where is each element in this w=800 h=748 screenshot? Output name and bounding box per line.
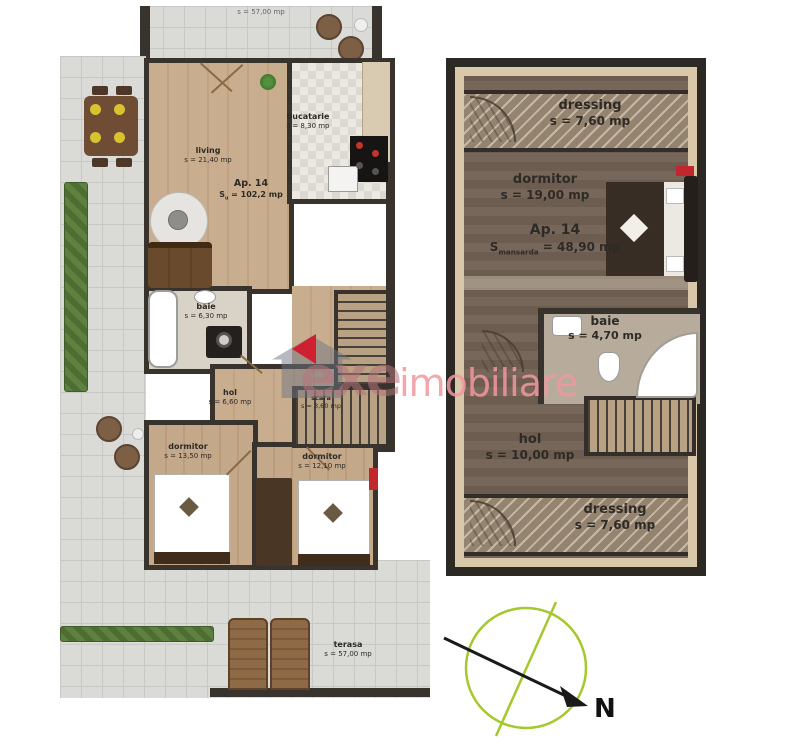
wall-segment: [372, 6, 382, 62]
room-name: hol: [200, 388, 260, 398]
room-area: s = 3,60 mp: [286, 402, 356, 410]
wall-segment: [140, 6, 150, 62]
sofa: [148, 242, 212, 288]
pillow: [666, 256, 684, 272]
label-dressing-top: dressing s = 7,60 mp: [520, 98, 660, 129]
burner: [356, 142, 363, 149]
chair: [92, 158, 108, 167]
plate: [114, 104, 125, 115]
room-name: living: [168, 146, 248, 156]
label-bedroom-2: dormitor s = 12,10 mp: [282, 452, 362, 471]
room-name: hol: [470, 432, 590, 448]
label-kitchen: bucatarie s = 8,30 mp: [268, 112, 348, 131]
label-terrace: terasa s = 57,00 mp: [306, 640, 390, 659]
hedge-strip: [60, 626, 214, 642]
room-area: s = 7,60 mp: [520, 114, 660, 129]
chair: [92, 86, 108, 95]
room-area: s = 8,30 mp: [268, 122, 348, 131]
planter-strip: [64, 182, 88, 392]
room-area: s = 4,70 mp: [560, 329, 650, 343]
room-area: s = 6,60 mp: [200, 398, 260, 407]
burner: [356, 162, 363, 169]
label-attic-bedroom: dormitor s = 19,00 mp: [470, 172, 620, 203]
sun-lounger: [228, 618, 268, 690]
room-name: bucatarie: [268, 112, 348, 122]
red-accent: [676, 166, 694, 176]
room-area: s = 7,60 mp: [540, 518, 690, 533]
room-area: s = 13,50 mp: [148, 452, 228, 461]
room-name: dormitor: [282, 452, 362, 462]
label-bedroom-1: dormitor s = 13,50 mp: [148, 442, 228, 461]
lounge-chair: [316, 14, 342, 40]
plate: [114, 132, 125, 143]
sun-lounger: [270, 618, 310, 690]
burner: [372, 168, 379, 175]
apartment-number: Ap. 14: [470, 222, 640, 240]
pillow: [666, 188, 684, 204]
lounge-chair: [96, 416, 122, 442]
label-apartment-upper: Ap. 14 Smansarda = 48,90 mp: [470, 222, 640, 256]
lounge-chair: [114, 444, 140, 470]
room-name: baie: [560, 314, 650, 329]
apartment-number: Ap. 14: [206, 178, 296, 190]
bathtub: [148, 290, 178, 368]
wall-segment: [538, 308, 544, 404]
burner: [372, 150, 379, 157]
room-name: dressing: [520, 98, 660, 114]
compass: N: [438, 596, 618, 746]
washer-drum: [216, 332, 232, 348]
bed: [154, 474, 230, 564]
apartment-area: Su = 102,2 mp: [206, 190, 296, 203]
side-table: [132, 428, 144, 440]
room-name: terasa: [306, 640, 390, 650]
room-area: s = 57,00 mp: [306, 650, 390, 659]
kitchen-sink: [328, 166, 358, 192]
label-dressing-bottom: dressing s = 7,60 mp: [540, 502, 690, 533]
room-name: dormitor: [148, 442, 228, 452]
wardrobe: [256, 478, 292, 566]
chair: [116, 86, 132, 95]
floorplan-canvas: s = 57,00 mp: [0, 0, 800, 748]
apartment-area: Smansarda = 48,90 mp: [470, 240, 640, 256]
plant: [260, 74, 276, 90]
room-area: s = 6,30 mp: [176, 312, 236, 321]
bed-headboard: [684, 176, 698, 282]
terrace-top-area-label: s = 57,00 mp: [206, 8, 316, 17]
bed-headboard: [154, 552, 230, 564]
label-living: living s = 21,40 mp: [168, 146, 248, 165]
label-hall: hol s = 6,60 mp: [200, 388, 260, 407]
room-name: baie: [176, 302, 236, 312]
compass-north-label: N: [594, 694, 616, 724]
compass-icon: N: [438, 596, 618, 746]
coffee-table: [168, 210, 188, 230]
chair: [116, 158, 132, 167]
label-bathroom: baie s = 6,30 mp: [176, 302, 236, 321]
bed-headboard: [298, 554, 370, 566]
plate: [90, 132, 101, 143]
plate: [90, 104, 101, 115]
label-attic-bathroom: baie s = 4,70 mp: [560, 314, 650, 343]
room-area: s = 10,00 mp: [470, 448, 590, 463]
attic-stairs: [584, 396, 696, 456]
room-name: dressing: [540, 502, 690, 518]
toilet: [598, 352, 620, 382]
room-area: s = 12,10 mp: [282, 462, 362, 471]
attic-light-band: [464, 276, 688, 290]
side-table: [354, 18, 368, 32]
room-area: s = 19,00 mp: [470, 188, 620, 203]
label-apartment-lower: Ap. 14 Su = 102,2 mp: [206, 178, 296, 202]
room-area: s = 21,40 mp: [168, 156, 248, 165]
red-accent: [369, 468, 378, 490]
label-attic-hall: hol s = 10,00 mp: [470, 432, 590, 463]
room-name: dormitor: [470, 172, 620, 188]
